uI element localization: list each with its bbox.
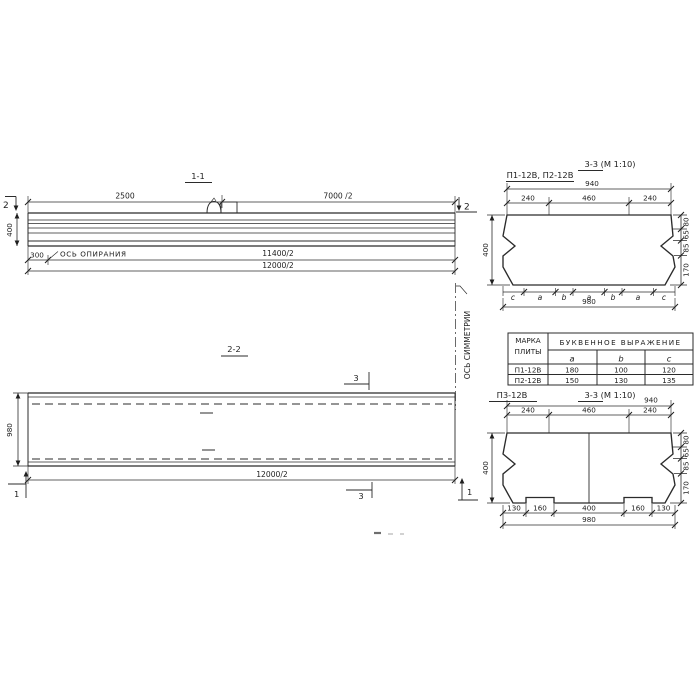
p3-bottom-400: 400 bbox=[582, 504, 596, 513]
view-1-1-title: 1-1 bbox=[191, 171, 205, 181]
p12-chain-240-left: 240 bbox=[521, 194, 535, 203]
p12-dim-400-label: 400 bbox=[481, 243, 490, 257]
axis-of-symmetry: ОСЬ СИММЕТРИИ bbox=[456, 283, 473, 410]
section-p12-title: 3-3 (М 1:10) bbox=[584, 159, 635, 169]
dim-12000-2-lower: 12000/2 bbox=[256, 470, 288, 479]
dim-400-label: 400 bbox=[5, 223, 14, 237]
cut-mark-1-left-label: 1 bbox=[14, 489, 19, 499]
dim-12000-plan: 12000/2 bbox=[25, 466, 458, 484]
cut-mark-3-top: 3 bbox=[344, 372, 369, 390]
lower-dims: 300 ОСЬ ОПИРАНИЯ 11400/2 12000/2 bbox=[25, 246, 458, 275]
row1-a: 180 bbox=[565, 366, 579, 375]
table-col1-header-line1: МАРКА bbox=[515, 336, 541, 345]
section-p3-title: 3-3 (М 1:10) bbox=[584, 390, 635, 400]
p12-letter-a1: a bbox=[538, 293, 543, 302]
p3-right-85: 85 bbox=[682, 461, 691, 470]
p12-chain-460: 460 bbox=[582, 194, 596, 203]
parameter-table: МАРКА ПЛИТЫ БУКВЕННОЕ ВЫРАЖЕНИЕ a b c П1… bbox=[508, 333, 693, 385]
symmetry-axis-leader bbox=[456, 286, 467, 294]
table-row: П1-12В 180 100 120 bbox=[515, 366, 677, 375]
p12-top-chain: 240 460 240 bbox=[504, 194, 674, 216]
p12-dim-980-label: 980 bbox=[582, 297, 596, 306]
p3-dim-400-label: 400 bbox=[481, 461, 490, 475]
p12-letter-b1: b bbox=[562, 293, 567, 302]
p12-right-80: 80 bbox=[682, 217, 691, 227]
row1-b: 100 bbox=[614, 366, 628, 375]
cut-mark-1-right: 1 bbox=[458, 478, 478, 500]
symmetry-axis-label: ОСЬ СИММЕТРИИ bbox=[463, 311, 472, 379]
view-2-2: 2-2 980 12000/2 3 bbox=[5, 344, 478, 501]
p12-right-65: 65 bbox=[682, 230, 691, 239]
p3-dim-980-label: 980 bbox=[582, 515, 596, 524]
row1-c: 120 bbox=[662, 366, 676, 375]
p12-right-85: 85 bbox=[682, 243, 691, 252]
dim-2500: 2500 bbox=[115, 192, 134, 201]
view-2-2-title: 2-2 bbox=[227, 344, 241, 354]
p12-body bbox=[503, 215, 675, 285]
p12-chain-240-right: 240 bbox=[643, 194, 657, 203]
p3-bottom-160-right: 160 bbox=[631, 504, 645, 513]
row2-c: 135 bbox=[662, 376, 676, 385]
dim-12000-2-upper: 12000/2 bbox=[262, 261, 294, 270]
p3-right-80: 80 bbox=[682, 435, 691, 445]
p3-dim-980: 980 bbox=[500, 515, 678, 529]
cut-mark-2-left-label: 2 bbox=[3, 201, 9, 211]
table-col-b: b bbox=[618, 354, 623, 364]
section-p3: П3-12В 3-3 (М 1:10) 940 240 460 240 400 bbox=[481, 390, 691, 529]
cut-mark-2-right: 2 bbox=[456, 197, 477, 213]
p12-letter-c1: c bbox=[511, 293, 516, 302]
p3-chain-240-left: 240 bbox=[521, 406, 535, 415]
view-1-1: 1-1 2500 7000 /2 2 2 bbox=[3, 171, 477, 275]
p3-bottom-160-left: 160 bbox=[533, 504, 547, 513]
cut-mark-3-bottom: 3 bbox=[346, 482, 372, 501]
section-p1-p2: П1-12В, П2-12В 3-3 (М 1:10) 940 240 460 … bbox=[481, 159, 691, 311]
row2-b: 130 bbox=[614, 376, 628, 385]
p3-right-65: 65 bbox=[682, 448, 691, 457]
p3-right-chain: 80 65 85 170 bbox=[670, 430, 691, 506]
p12-right-170: 170 bbox=[682, 263, 691, 277]
cut-mark-3-bottom-label: 3 bbox=[358, 491, 363, 501]
p3-chain-240-right: 240 bbox=[643, 406, 657, 415]
p12-dim-940-label: 940 bbox=[585, 179, 599, 188]
row2-a: 150 bbox=[565, 376, 579, 385]
cut-mark-2-left: 2 bbox=[3, 197, 18, 212]
row1-mark: П1-12В bbox=[515, 366, 542, 375]
p3-right-170: 170 bbox=[682, 481, 691, 495]
p12-letter-c2: c bbox=[662, 293, 667, 302]
table-col1-header-line2: ПЛИТЫ bbox=[515, 347, 542, 356]
p12-dim-980: 980 bbox=[500, 297, 678, 311]
scan-artifact bbox=[374, 533, 404, 534]
p3-bottom-130-right: 130 bbox=[657, 504, 671, 513]
row2-mark: П2-12В bbox=[515, 376, 542, 385]
p3-dim-940-label: 940 bbox=[644, 396, 658, 405]
cut-mark-1-left: 1 bbox=[8, 471, 28, 499]
p12-right-chain: 80 65 85 170 bbox=[670, 212, 691, 288]
table-col-c: c bbox=[667, 354, 672, 364]
cut-mark-1-right-label: 1 bbox=[467, 487, 472, 497]
plan-middle-dashes bbox=[200, 413, 215, 450]
cut-mark-3-top-label: 3 bbox=[353, 373, 358, 383]
support-axis-label: ОСЬ ОПИРАНИЯ bbox=[60, 250, 127, 259]
p3-top-chain: 240 460 240 bbox=[504, 406, 674, 434]
p12-letter-a3: a bbox=[636, 293, 641, 302]
dim-300: 300 bbox=[30, 251, 44, 260]
p3-chain-460: 460 bbox=[582, 406, 596, 415]
blueprint-page: 1-1 2500 7000 /2 2 2 bbox=[0, 0, 700, 700]
p12-letter-b2: b bbox=[611, 293, 616, 302]
dim-7000-2: 7000 /2 bbox=[323, 192, 352, 201]
table-col-a: a bbox=[569, 354, 574, 364]
top-dim-extensions bbox=[28, 195, 455, 213]
p3-bottom-130-left: 130 bbox=[507, 504, 521, 513]
cut-mark-2-right-label: 2 bbox=[464, 203, 470, 213]
dim-400-vertical: 400 bbox=[5, 213, 19, 246]
table-row: П2-12В 150 130 135 bbox=[515, 376, 676, 385]
drawing-canvas: 1-1 2500 7000 /2 2 2 bbox=[0, 0, 700, 700]
dim-980-label: 980 bbox=[5, 423, 14, 437]
table-span-header: БУКВЕННОЕ ВЫРАЖЕНИЕ bbox=[560, 338, 682, 347]
slab-plan-outline bbox=[28, 393, 455, 466]
dim-980-vertical: 980 bbox=[5, 393, 28, 466]
section-p12-label: П1-12В, П2-12В bbox=[507, 170, 574, 180]
dim-11400-2: 11400/2 bbox=[262, 249, 294, 258]
section-p3-label: П3-12В bbox=[497, 390, 528, 400]
slab-longitudinal-outline bbox=[28, 213, 455, 246]
